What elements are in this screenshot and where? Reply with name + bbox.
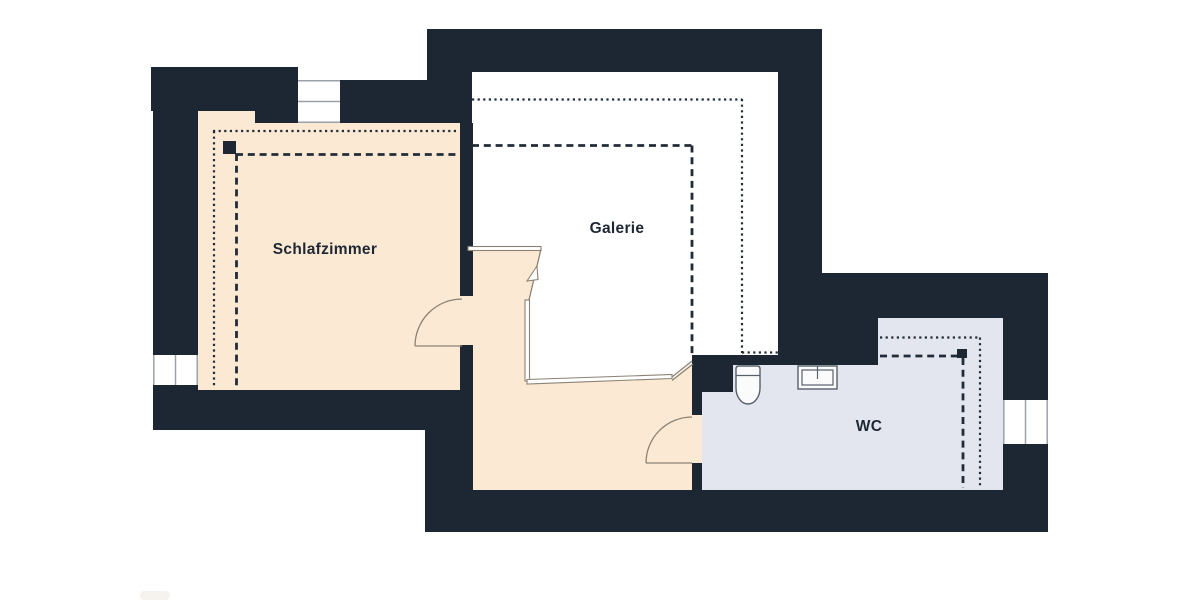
cropped-edge-artifact <box>140 591 170 600</box>
window-left <box>153 355 198 385</box>
marker-square <box>223 141 236 154</box>
floor-plan-svg: Schlafzimmer Galerie WC <box>0 0 1200 600</box>
marker-square <box>957 349 967 358</box>
window-right <box>1003 400 1048 444</box>
room-label-galerie: Galerie <box>590 220 645 237</box>
floor-plan-page: Schlafzimmer Galerie WC <box>0 0 1200 600</box>
door-opening <box>692 415 702 463</box>
toilet-fixture <box>736 366 760 404</box>
railing-top <box>468 247 541 251</box>
railing-vertical <box>525 300 530 381</box>
window-top <box>298 80 340 123</box>
door-opening <box>460 296 473 345</box>
toilet-outline <box>736 366 760 404</box>
sink-fixture <box>798 366 837 389</box>
room-label-schlafzimmer: Schlafzimmer <box>273 241 377 258</box>
room-label-wc: WC <box>856 418 882 435</box>
